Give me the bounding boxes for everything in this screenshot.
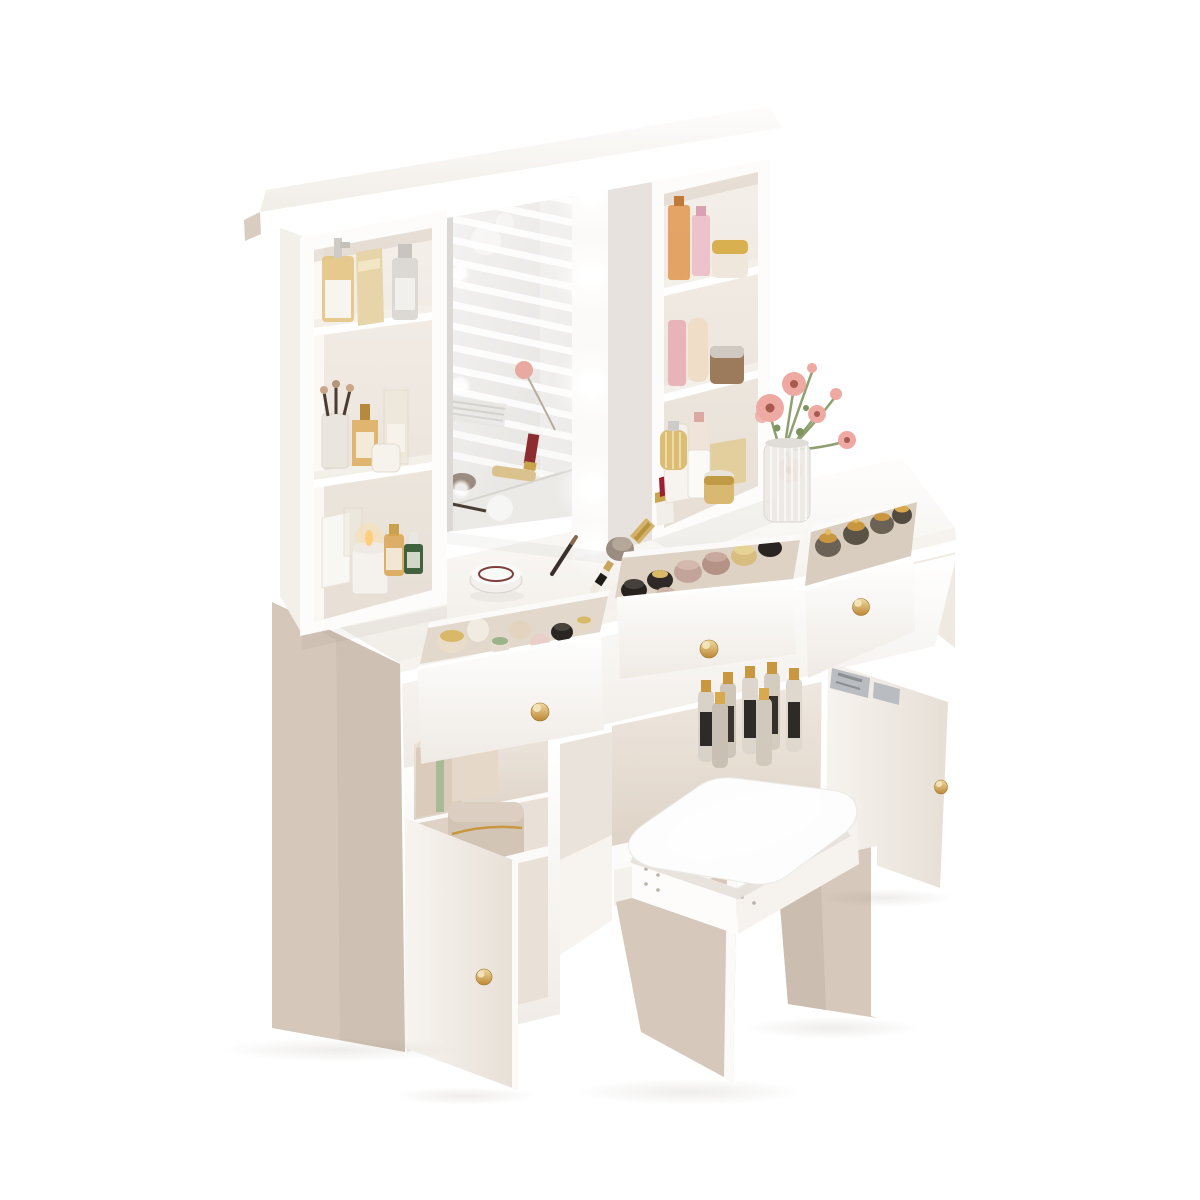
middle-drawer-knob	[700, 640, 718, 658]
stool-shadow	[575, 1079, 805, 1105]
silver-bottle-cap	[398, 244, 412, 258]
candle-flame	[365, 530, 373, 546]
pink-slim-bottle	[668, 320, 686, 386]
gold-striped-lid	[712, 240, 748, 254]
brush-cup	[322, 414, 348, 468]
cabinet-floor-shadow	[220, 1038, 460, 1062]
pink-cap	[694, 412, 704, 422]
brown-jar-lid	[710, 346, 744, 358]
left-door-edge	[512, 860, 518, 1090]
brush-tip	[346, 384, 354, 392]
right-door-knob	[935, 780, 948, 794]
brush-tip	[320, 386, 328, 394]
stool-shadow-2	[744, 1017, 920, 1039]
left-top-shelf-items	[322, 238, 418, 326]
silver-bottle-label	[395, 278, 415, 310]
led-bulb	[578, 473, 608, 503]
led-bulb	[576, 181, 606, 211]
product-photo-canvas	[0, 0, 1200, 1200]
led-bulb	[576, 369, 608, 401]
mirror-left-seam	[447, 217, 453, 532]
cream-tube	[688, 318, 708, 382]
vase	[764, 438, 810, 522]
pink-perfume	[692, 215, 710, 276]
right-door-floor-shadow	[815, 889, 955, 907]
dropper-top	[409, 532, 418, 544]
candle	[352, 548, 388, 594]
gold-perfume-label	[356, 432, 374, 458]
brush-tip	[332, 380, 340, 388]
gold-serum-label	[386, 548, 402, 570]
gold-perfume-cap	[360, 404, 370, 420]
left-door-knob	[476, 969, 492, 985]
orange-perfume-cap	[674, 196, 684, 206]
stool-right-leg-edge	[871, 846, 877, 1018]
right-drawer-knob	[853, 599, 870, 616]
vanity-scene	[0, 0, 1200, 1200]
green-serum-label	[407, 552, 420, 568]
gold-jar	[704, 470, 734, 504]
crown-left-side	[244, 212, 261, 241]
pink-perfume-cap	[696, 206, 706, 216]
hutch-center-divider	[608, 182, 652, 552]
hutch-left-side	[280, 228, 302, 634]
amber-bottle-label	[325, 280, 351, 318]
door-floor-shadow	[393, 1087, 537, 1105]
vase-rim	[765, 438, 809, 448]
left-drawer-knob	[531, 703, 549, 721]
orange-perfume	[668, 205, 690, 280]
hutch-left-tower	[300, 210, 447, 636]
led-bulb	[576, 260, 608, 292]
white-jar	[372, 444, 400, 472]
pump-spout	[340, 242, 350, 248]
reflected-flower	[515, 361, 533, 379]
